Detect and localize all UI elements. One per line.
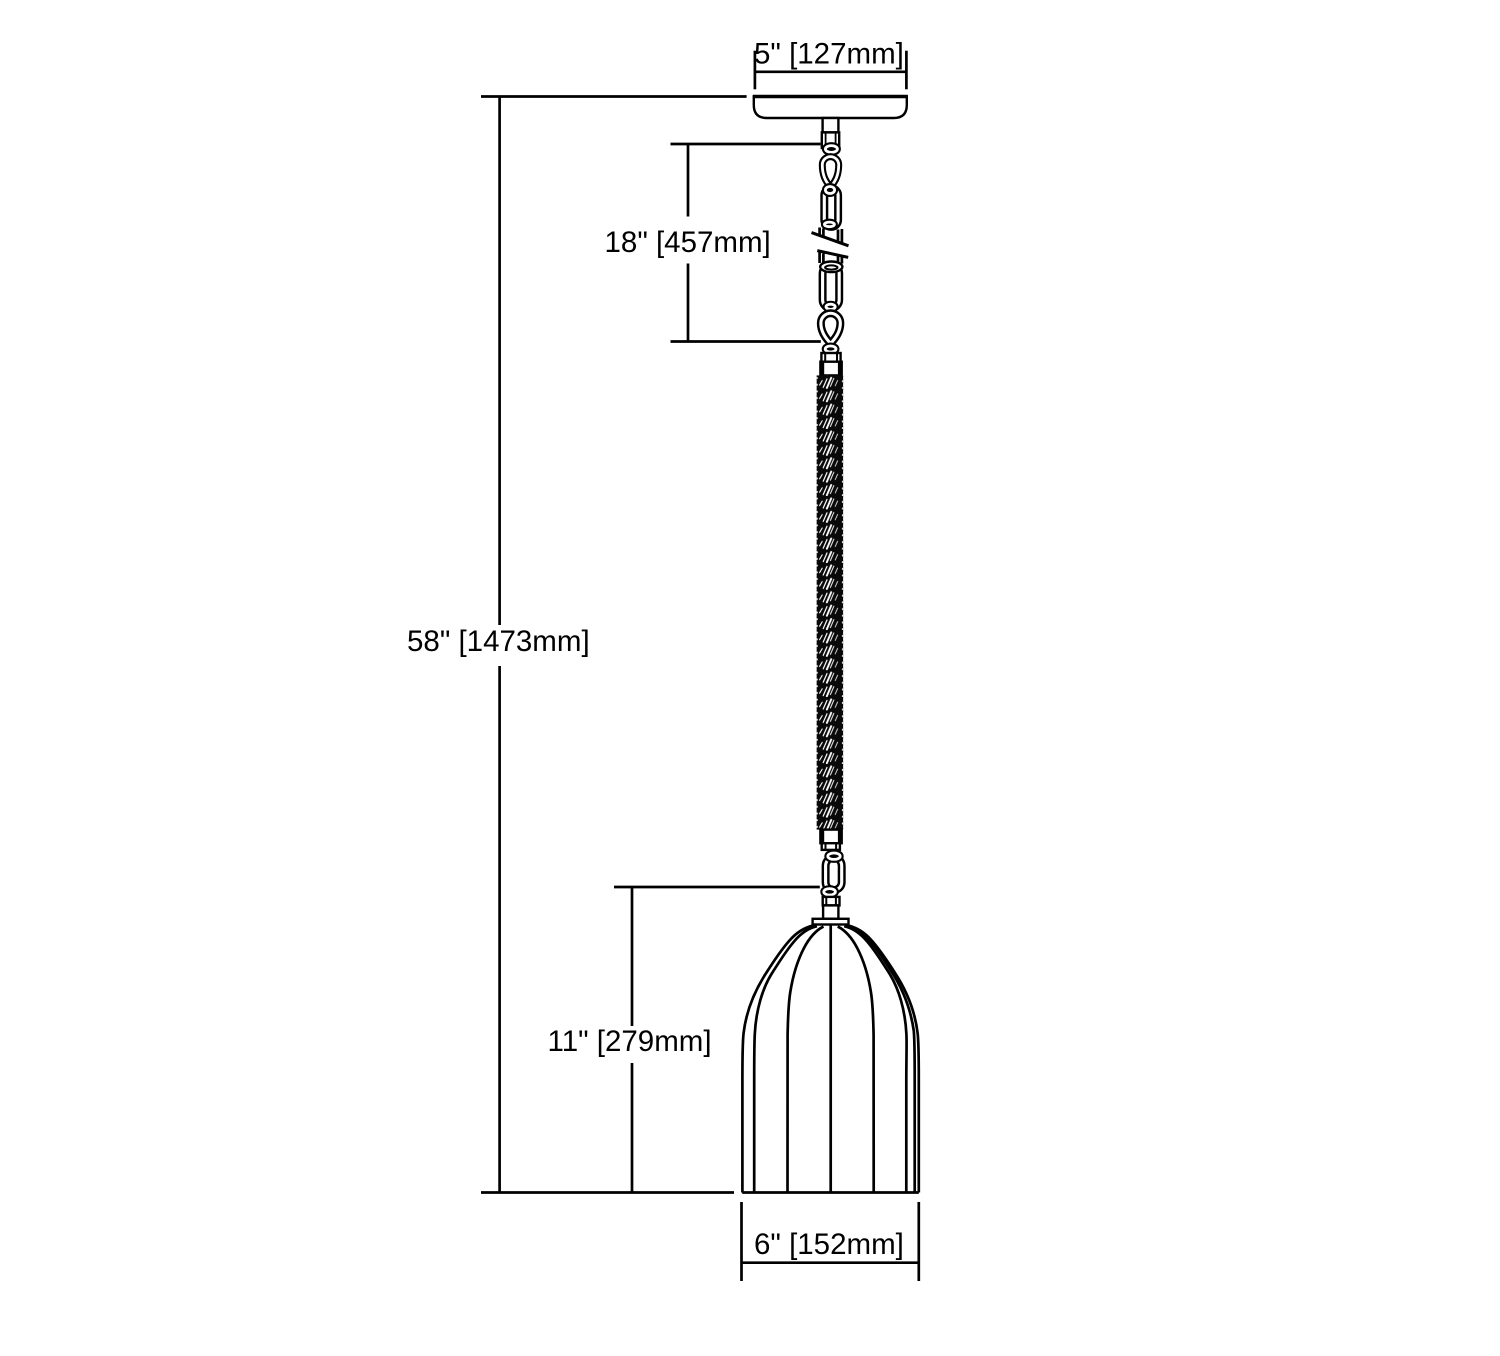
svg-text:58" [1473mm]: 58" [1473mm]: [407, 625, 590, 658]
svg-text:6" [152mm]: 6" [152mm]: [754, 1228, 904, 1261]
svg-text:18" [457mm]: 18" [457mm]: [605, 226, 771, 259]
svg-text:11" [279mm]: 11" [279mm]: [548, 1025, 712, 1058]
svg-text:5" [127mm]: 5" [127mm]: [754, 38, 904, 71]
